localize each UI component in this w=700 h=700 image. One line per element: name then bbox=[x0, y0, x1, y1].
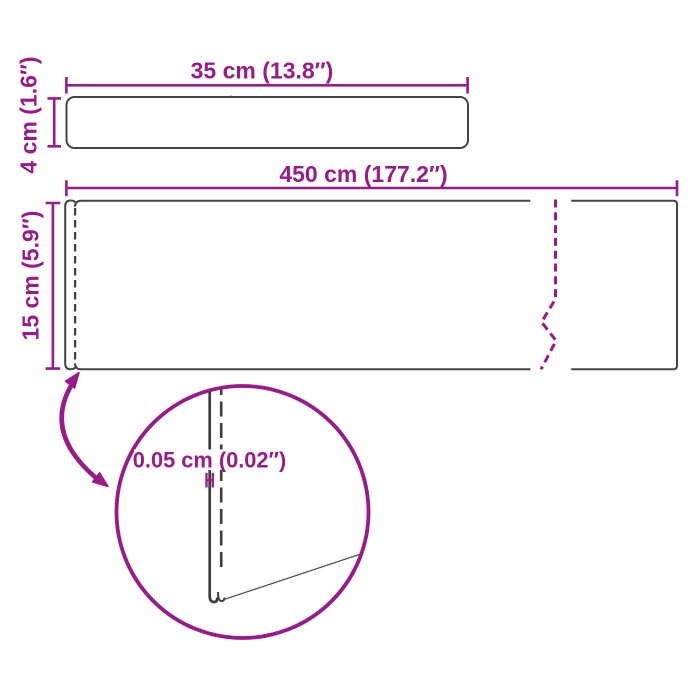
svg-text:4 cm (1.6″): 4 cm (1.6″) bbox=[15, 56, 41, 173]
svg-text:0.05 cm (0.02″): 0.05 cm (0.02″) bbox=[133, 448, 286, 473]
svg-text:35 cm (13.8″): 35 cm (13.8″) bbox=[191, 58, 334, 84]
svg-text:15 cm (5.9″): 15 cm (5.9″) bbox=[18, 211, 44, 341]
svg-text:450 cm (177.2″): 450 cm (177.2″) bbox=[279, 161, 447, 187]
